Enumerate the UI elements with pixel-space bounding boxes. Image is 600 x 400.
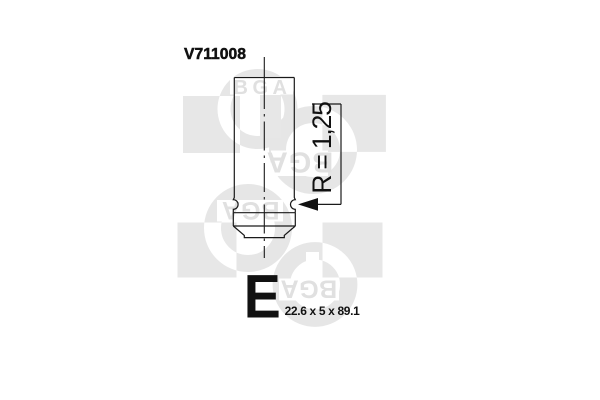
svg-text:V711008: V711008: [184, 46, 246, 63]
svg-text:E: E: [244, 262, 281, 330]
svg-text:BGA: BGA: [234, 77, 292, 99]
svg-text:R = 1,25: R = 1,25: [307, 102, 337, 194]
svg-text:BGA: BGA: [280, 275, 337, 303]
svg-text:22.6 x 5 x 89.1: 22.6 x 5 x 89.1: [285, 304, 360, 318]
svg-text:BGA: BGA: [221, 196, 280, 224]
